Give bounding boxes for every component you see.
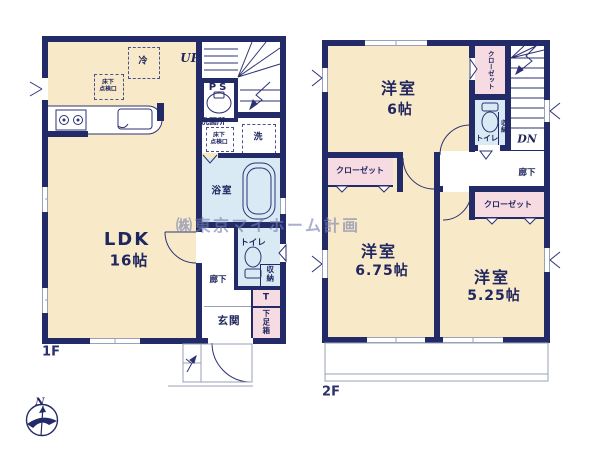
- fridge-label: 冷: [138, 58, 147, 67]
- floor2-window-left-1: [322, 68, 328, 92]
- floor1-storage-label: 収納: [266, 266, 274, 283]
- bedroom-c-label: 洋室: [474, 270, 510, 286]
- bedroom-b-size: 6.75帖: [355, 264, 409, 278]
- bedroom-a-size: 6帖: [387, 103, 413, 117]
- floor2-window-bottom-2: [443, 337, 503, 343]
- bedroom-c-size: 5.25帖: [467, 289, 521, 303]
- floor1-entrance-opening: [208, 338, 253, 344]
- floor2-closet-east-label: クローゼット: [484, 201, 532, 209]
- floor2-closet-north-label: クローゼット: [487, 51, 494, 90]
- porch-step-arrow: [186, 356, 196, 372]
- floor-hatch-label-kitchen: 床下 点検口: [99, 79, 117, 93]
- floor2-closet-west-label: クローゼット: [336, 167, 384, 175]
- floor1-toilet-label: トイレ: [240, 239, 266, 248]
- watermark: ㈱東京マイホーム計画: [176, 212, 361, 236]
- floor1-stairs-label: UP: [180, 52, 200, 64]
- floor2-hallway-label: 廊下: [518, 169, 535, 178]
- entrance-door: [212, 343, 250, 382]
- ldk-size-label: 16帖: [110, 254, 149, 269]
- compass-north-label: N: [35, 398, 44, 408]
- floor-plan-canvas: UP PS 洗面所 洗 冷 床下 点検口 床下 点検口 浴室 LDK 16帖 廊…: [0, 0, 600, 449]
- washer-label: 洗: [253, 134, 262, 143]
- floor2-stairs-label: DN: [517, 134, 537, 145]
- floor1-window-bottom: [90, 338, 140, 344]
- entrance-label: 玄関: [218, 316, 241, 327]
- floor1-window-left-1: [42, 187, 48, 212]
- floor2-closet-door-opening: [469, 58, 475, 80]
- floor1-label: 1F: [42, 346, 60, 359]
- compass-icon: [27, 405, 58, 437]
- bedroom-b-label: 洋室: [361, 244, 397, 260]
- floor2-window-right-2: [544, 248, 550, 272]
- floor1-kitchen-door-opening: [42, 78, 48, 100]
- balcony: [325, 343, 548, 381]
- ldk-label: LDK: [104, 231, 150, 249]
- ps-label: PS: [209, 83, 230, 93]
- floor2-window-bottom-1: [367, 337, 425, 343]
- washroom-label: 洗面所: [201, 118, 225, 126]
- floor1-window-left-2: [42, 288, 48, 313]
- floor1-toilet-door-opening: [280, 244, 286, 262]
- floor2-toilet-label: トイレ: [476, 134, 499, 142]
- floor2-toilet-door-opening: [478, 145, 500, 151]
- floor2-window-left-2: [322, 250, 328, 278]
- floor1-hallway-label: 廊下: [209, 276, 226, 285]
- bedroom-a-label: 洋室: [381, 81, 417, 97]
- floor2-label: 2F: [322, 386, 340, 399]
- floor2-window-right-1: [544, 100, 550, 122]
- floor2-window-top: [365, 40, 427, 46]
- floor2-storage-label: 収納: [500, 120, 507, 133]
- shoe-cabinet-label: 下足箱: [262, 309, 270, 335]
- floor-hatch-label-washroom: 床下 点検口: [210, 132, 228, 146]
- floor1-ldk-door-opening: [196, 232, 202, 263]
- porch: [168, 344, 253, 386]
- bath-label: 浴室: [211, 186, 232, 196]
- towel-label: T: [263, 294, 269, 303]
